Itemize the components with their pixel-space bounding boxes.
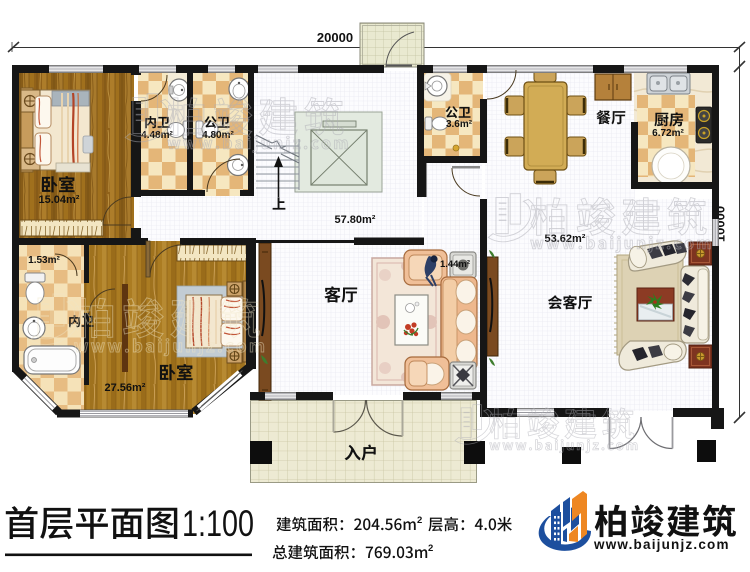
svg-text:1.44m²: 1.44m² xyxy=(440,259,470,270)
svg-text:1.53m²: 1.53m² xyxy=(28,255,60,266)
svg-text:www.baijunjz.com: www.baijunjz.com xyxy=(593,537,730,552)
svg-text:2: 2 xyxy=(417,515,422,526)
svg-text:1:100: 1:100 xyxy=(182,503,254,544)
svg-text:27.56m²: 27.56m² xyxy=(105,382,146,394)
svg-text:57.80m²: 57.80m² xyxy=(335,214,376,226)
svg-text:2: 2 xyxy=(428,543,433,554)
svg-text:6.72m²: 6.72m² xyxy=(652,128,684,139)
svg-text:3.6m²: 3.6m² xyxy=(446,119,473,130)
svg-text:20000: 20000 xyxy=(317,30,353,45)
svg-text:15.04m²: 15.04m² xyxy=(39,194,80,206)
